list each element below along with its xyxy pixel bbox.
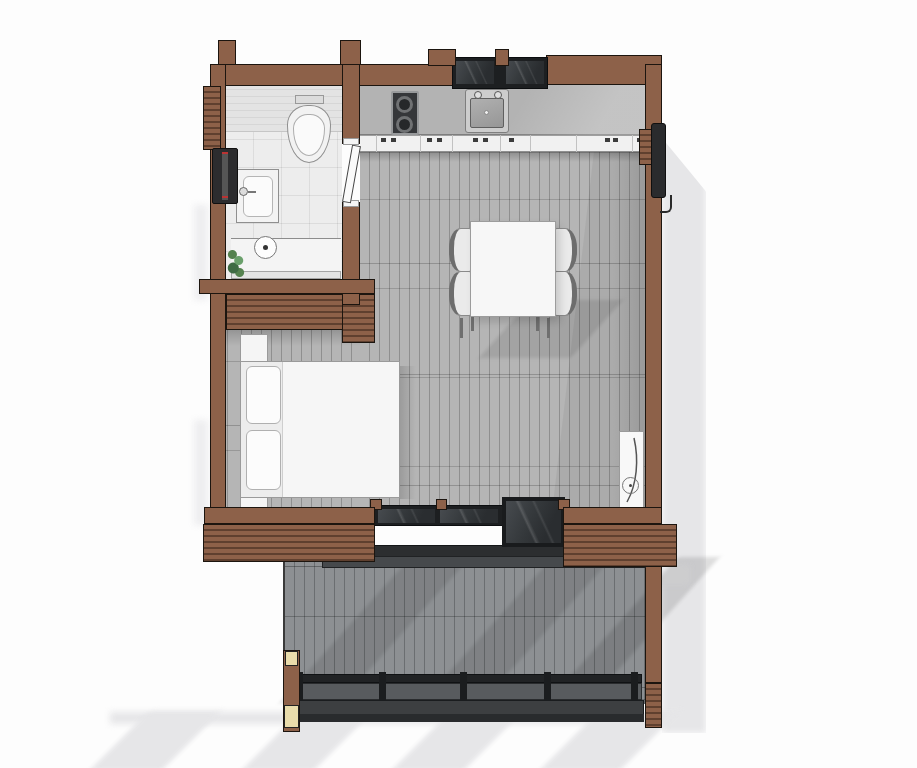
nightstand (240, 334, 268, 362)
log-ends-bottom-left (203, 524, 375, 562)
cabinet-handle-icon (483, 138, 488, 142)
bathroom-door-leaf (342, 145, 361, 204)
deck-fascia (288, 700, 644, 715)
railing-post (631, 672, 638, 700)
potted-plant-icon (227, 247, 245, 277)
cabinet-handle-icon (427, 138, 432, 142)
washbasin-bowl (243, 176, 273, 217)
tap-knob-icon (494, 91, 502, 99)
cabinet-handle-icon (613, 138, 618, 142)
kitchen-window-pane (506, 61, 544, 84)
pillow (246, 366, 281, 424)
left-window-detail (222, 152, 228, 200)
building-shadow-right (662, 138, 706, 733)
wall-bathroom-right-upper (342, 64, 360, 144)
door-jamb (343, 138, 359, 145)
chair-leg-icon (460, 318, 463, 338)
heater-dial-dot (629, 484, 632, 487)
wall-bottom-right (563, 507, 662, 524)
sink-drain-dot (484, 110, 489, 115)
post-cap-cream (284, 705, 299, 728)
bed-floor-shadow (400, 366, 416, 499)
cabinet-handle-icon (391, 138, 396, 142)
door-post-cap (436, 499, 447, 510)
heater-curve-icon (620, 432, 645, 509)
toilet-flush-plate (295, 95, 324, 104)
cabinet-handle-icon (509, 138, 514, 142)
faucet-spout-icon (248, 191, 256, 193)
sliding-door-pane (440, 509, 498, 523)
cabinet-handle-icon (473, 138, 478, 142)
log-ends-left-top (203, 86, 221, 150)
dining-chair (554, 228, 577, 272)
cabinet-divider (420, 135, 421, 152)
railing-post (460, 672, 467, 700)
dining-table (470, 221, 556, 317)
tap-knob-icon (474, 91, 482, 99)
window-cap-log (428, 49, 456, 66)
cabinet-divider (530, 135, 531, 152)
cabinet-handle-icon (437, 138, 442, 142)
wall-bottom-left (204, 507, 375, 524)
faucet-knob-icon (239, 187, 248, 196)
dining-chair (554, 271, 577, 316)
cabinet-divider (452, 135, 453, 152)
dining-chair (449, 271, 472, 316)
right-wall-shutter-unit (651, 123, 666, 198)
cabinet-divider (376, 135, 377, 152)
base-cabinet-fronts (360, 135, 645, 152)
table-leg-icon (471, 315, 474, 331)
kitchen-window-pane (456, 61, 494, 84)
shower-curb (231, 271, 341, 279)
wall-bathroom-bottom (199, 279, 375, 294)
deck-fascia-lip (284, 714, 644, 722)
railing-post (379, 672, 386, 700)
deck-railing-top-bar (296, 674, 642, 683)
cabinet-handle-icon (605, 138, 610, 142)
burner-icon (396, 116, 413, 133)
deck-railing-panel (296, 683, 642, 700)
chair-leg-icon (547, 318, 550, 338)
deck-stair-strip (645, 683, 662, 728)
cabinet-divider (632, 135, 633, 152)
duvet-fold-line (282, 362, 283, 497)
post-cap-cream (285, 651, 298, 666)
railing-shadow-stripe (88, 712, 220, 768)
cabinet-divider (500, 135, 501, 152)
wall-top-left (210, 64, 456, 86)
pillow (246, 430, 281, 490)
tall-wall-heater (619, 431, 644, 508)
cabinet-divider (576, 135, 577, 152)
window-cap-log (495, 49, 509, 66)
railing-post (544, 672, 551, 700)
sliding-door-pane (378, 509, 435, 523)
burner-icon (396, 96, 413, 113)
right-wall-hook-icon (660, 195, 672, 213)
floor-plan-canvas (0, 0, 917, 768)
floor-drain-dot (263, 245, 268, 250)
log-ends-bottom-right (563, 524, 677, 567)
open-glass-door-panel (502, 497, 565, 547)
cabinet-handle-icon (381, 138, 386, 142)
dining-chair (449, 228, 472, 272)
table-leg-icon (536, 315, 539, 331)
